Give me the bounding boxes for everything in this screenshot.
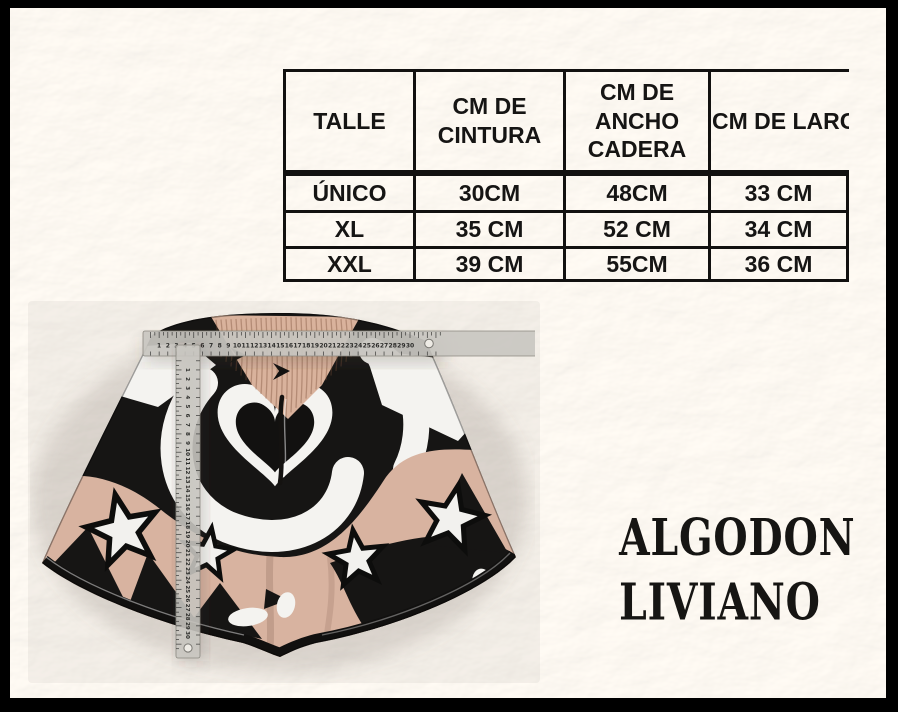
svg-text:5: 5 bbox=[184, 405, 190, 409]
svg-text:16: 16 bbox=[184, 503, 190, 511]
table-cell-talle: XL bbox=[283, 210, 413, 246]
svg-text:25: 25 bbox=[184, 585, 190, 593]
vertical-ruler: 1234567891011121314151617181920212223242… bbox=[176, 345, 203, 661]
table-cell-cintura: 35 CM bbox=[413, 210, 563, 246]
svg-text:23: 23 bbox=[184, 567, 190, 575]
material-label: ALGODON LIVIANO bbox=[619, 506, 812, 635]
svg-text:9: 9 bbox=[184, 441, 190, 445]
svg-text:12: 12 bbox=[184, 467, 190, 475]
svg-text:13: 13 bbox=[259, 343, 267, 350]
svg-text:8: 8 bbox=[184, 432, 190, 436]
svg-text:19: 19 bbox=[184, 531, 190, 539]
svg-text:28: 28 bbox=[184, 613, 190, 621]
table-header-cintura: CM DE CINTURA bbox=[413, 69, 563, 173]
table-cell-cadera: 55CM bbox=[563, 246, 708, 282]
svg-text:11: 11 bbox=[241, 343, 249, 350]
table-header-cadera: CM DE ANCHO CADERA bbox=[563, 69, 708, 173]
material-label-line2: LIVIANO bbox=[619, 571, 812, 636]
svg-text:7: 7 bbox=[184, 423, 190, 427]
svg-text:8: 8 bbox=[218, 343, 222, 350]
svg-text:23: 23 bbox=[345, 343, 353, 350]
ruler-hole bbox=[184, 644, 192, 652]
material-label-line1: ALGODON bbox=[619, 506, 812, 571]
table-cell-cadera: 52 CM bbox=[563, 210, 708, 246]
svg-text:14: 14 bbox=[267, 343, 275, 350]
table-cell-largo: 34 CM bbox=[708, 210, 849, 246]
table-header-largo: CM DE LARGO bbox=[708, 69, 849, 173]
svg-text:18: 18 bbox=[302, 343, 310, 350]
svg-text:22: 22 bbox=[184, 558, 190, 566]
table-cell-talle: XXL bbox=[283, 246, 413, 282]
svg-text:29: 29 bbox=[184, 622, 190, 630]
product-card-frame: TALLE CM DE CINTURA CM DE ANCHO CADERA C… bbox=[0, 0, 898, 712]
svg-text:15: 15 bbox=[184, 494, 190, 502]
table-cell-cadera: 48CM bbox=[563, 173, 708, 210]
svg-text:13: 13 bbox=[184, 476, 190, 484]
svg-text:2: 2 bbox=[166, 343, 170, 350]
svg-text:20: 20 bbox=[184, 540, 190, 548]
svg-text:21: 21 bbox=[184, 549, 190, 557]
table-cell-largo: 36 CM bbox=[708, 246, 849, 282]
svg-text:18: 18 bbox=[184, 521, 190, 529]
svg-text:19: 19 bbox=[311, 343, 319, 350]
svg-text:16: 16 bbox=[285, 343, 293, 350]
svg-text:10: 10 bbox=[184, 448, 190, 456]
svg-text:24: 24 bbox=[354, 343, 362, 350]
svg-text:15: 15 bbox=[276, 343, 284, 350]
table-cell-largo: 33 CM bbox=[708, 173, 849, 210]
fur-canvas: TALLE CM DE CINTURA CM DE ANCHO CADERA C… bbox=[10, 8, 886, 698]
svg-text:25: 25 bbox=[363, 343, 371, 350]
svg-text:2: 2 bbox=[184, 377, 190, 381]
svg-text:27: 27 bbox=[380, 343, 388, 350]
product-photo-shorts: 1234567891011121314151617181920212223242… bbox=[30, 305, 535, 685]
svg-text:17: 17 bbox=[184, 512, 190, 520]
ruler-hole bbox=[425, 339, 434, 348]
svg-text:24: 24 bbox=[184, 576, 190, 584]
svg-text:10: 10 bbox=[233, 343, 241, 350]
svg-text:17: 17 bbox=[293, 343, 301, 350]
drawstring bbox=[280, 397, 282, 483]
svg-text:28: 28 bbox=[389, 343, 397, 350]
svg-text:1: 1 bbox=[157, 343, 161, 350]
svg-text:21: 21 bbox=[328, 343, 336, 350]
svg-text:22: 22 bbox=[337, 343, 345, 350]
svg-text:6: 6 bbox=[184, 414, 190, 418]
svg-text:7: 7 bbox=[209, 343, 213, 350]
svg-text:1: 1 bbox=[184, 368, 190, 372]
svg-text:29: 29 bbox=[397, 343, 405, 350]
svg-text:26: 26 bbox=[371, 343, 379, 350]
table-cell-cintura: 39 CM bbox=[413, 246, 563, 282]
table-header-talle: TALLE bbox=[283, 69, 413, 173]
svg-text:26: 26 bbox=[184, 595, 190, 603]
table-cell-talle: ÚNICO bbox=[283, 173, 413, 210]
table-cell-cintura: 30CM bbox=[413, 173, 563, 210]
svg-text:12: 12 bbox=[250, 343, 258, 350]
svg-text:14: 14 bbox=[184, 485, 190, 493]
svg-text:30: 30 bbox=[406, 343, 414, 350]
svg-text:9: 9 bbox=[226, 343, 230, 350]
svg-text:3: 3 bbox=[184, 386, 190, 390]
svg-text:27: 27 bbox=[184, 604, 190, 612]
svg-text:30: 30 bbox=[184, 631, 190, 639]
svg-text:4: 4 bbox=[184, 395, 190, 399]
size-table: TALLE CM DE CINTURA CM DE ANCHO CADERA C… bbox=[283, 69, 849, 282]
svg-text:11: 11 bbox=[184, 457, 190, 465]
svg-text:20: 20 bbox=[319, 343, 327, 350]
